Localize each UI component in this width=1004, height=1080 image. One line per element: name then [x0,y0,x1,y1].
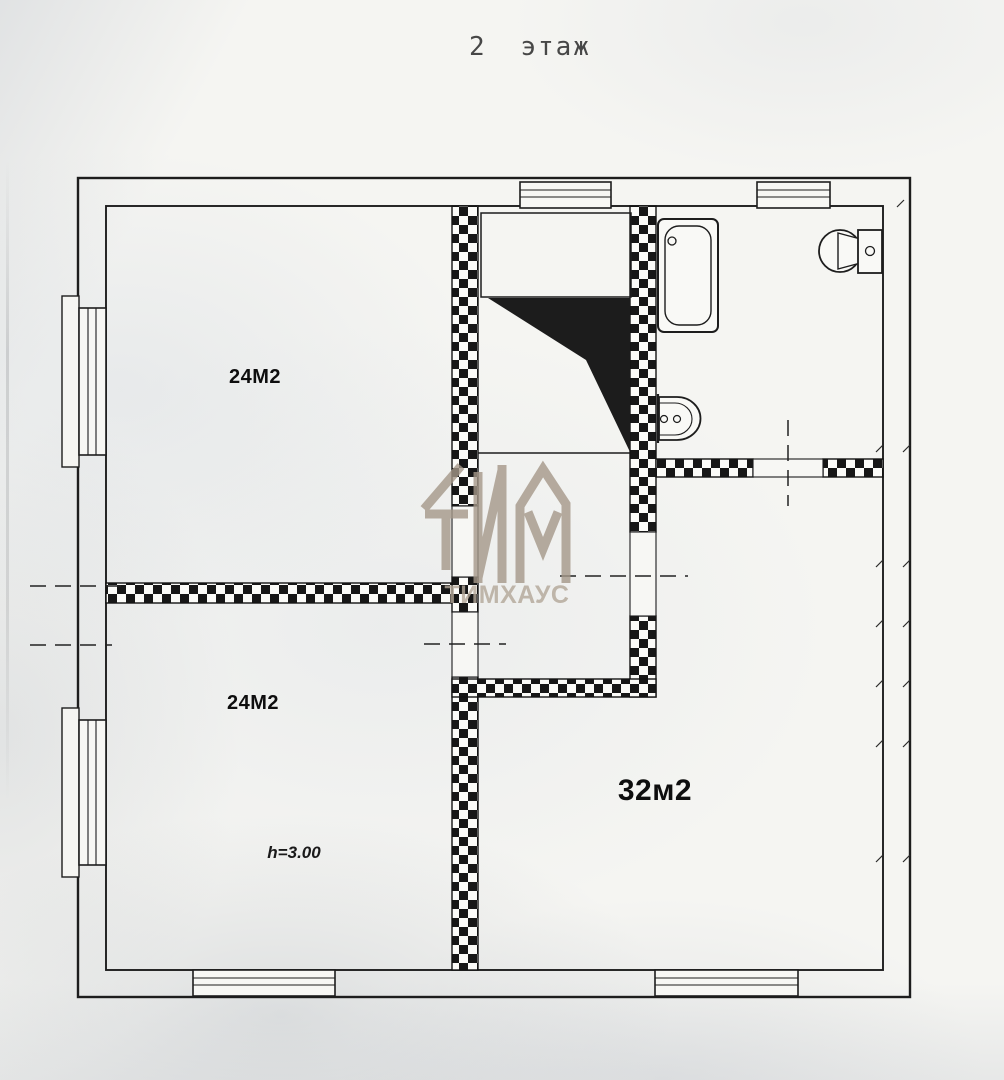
stair-landing-outline [481,213,631,297]
wall-ticks [876,200,910,862]
window-top-1 [520,182,611,208]
room-area-label-bottom-left: 24М2 [198,692,308,715]
wall-hall-bottom [452,679,656,697]
room-area-label-bottom-right: 32м2 [580,774,730,808]
window-bottom-2 [655,970,798,996]
wall-left-divider [106,583,452,603]
floor-plan-drawing: ТИМХАУС [0,0,1004,1080]
stair-void [488,298,630,452]
sink-icon [658,394,701,443]
window-bottom-1 [193,970,335,996]
door-room-br [630,532,656,616]
toilet-icon [819,230,882,273]
room-area-label-top-left: 24М2 [200,366,310,389]
watermark-text: ТИМХАУС [445,581,570,609]
scanned-floor-plan-page: 2 этаж [0,0,1004,1080]
watermark-logo-icon [424,465,566,583]
window-top-2 [757,182,830,208]
axis-lines [30,420,788,645]
window-left-top [62,296,106,467]
watermark: ТИМХАУС [424,465,569,609]
window-left-bottom [62,708,106,877]
bathtub-icon [658,219,718,332]
wall-center-left-lower [452,677,478,970]
wall-center-right-upper [630,206,656,532]
stairwell [478,213,631,453]
ceiling-height-label: h=3.00 [244,843,344,863]
wall-bath-bottom-left [656,459,753,477]
wall-bath-bottom-right [823,459,883,477]
wall-center-left-upper [452,206,478,506]
